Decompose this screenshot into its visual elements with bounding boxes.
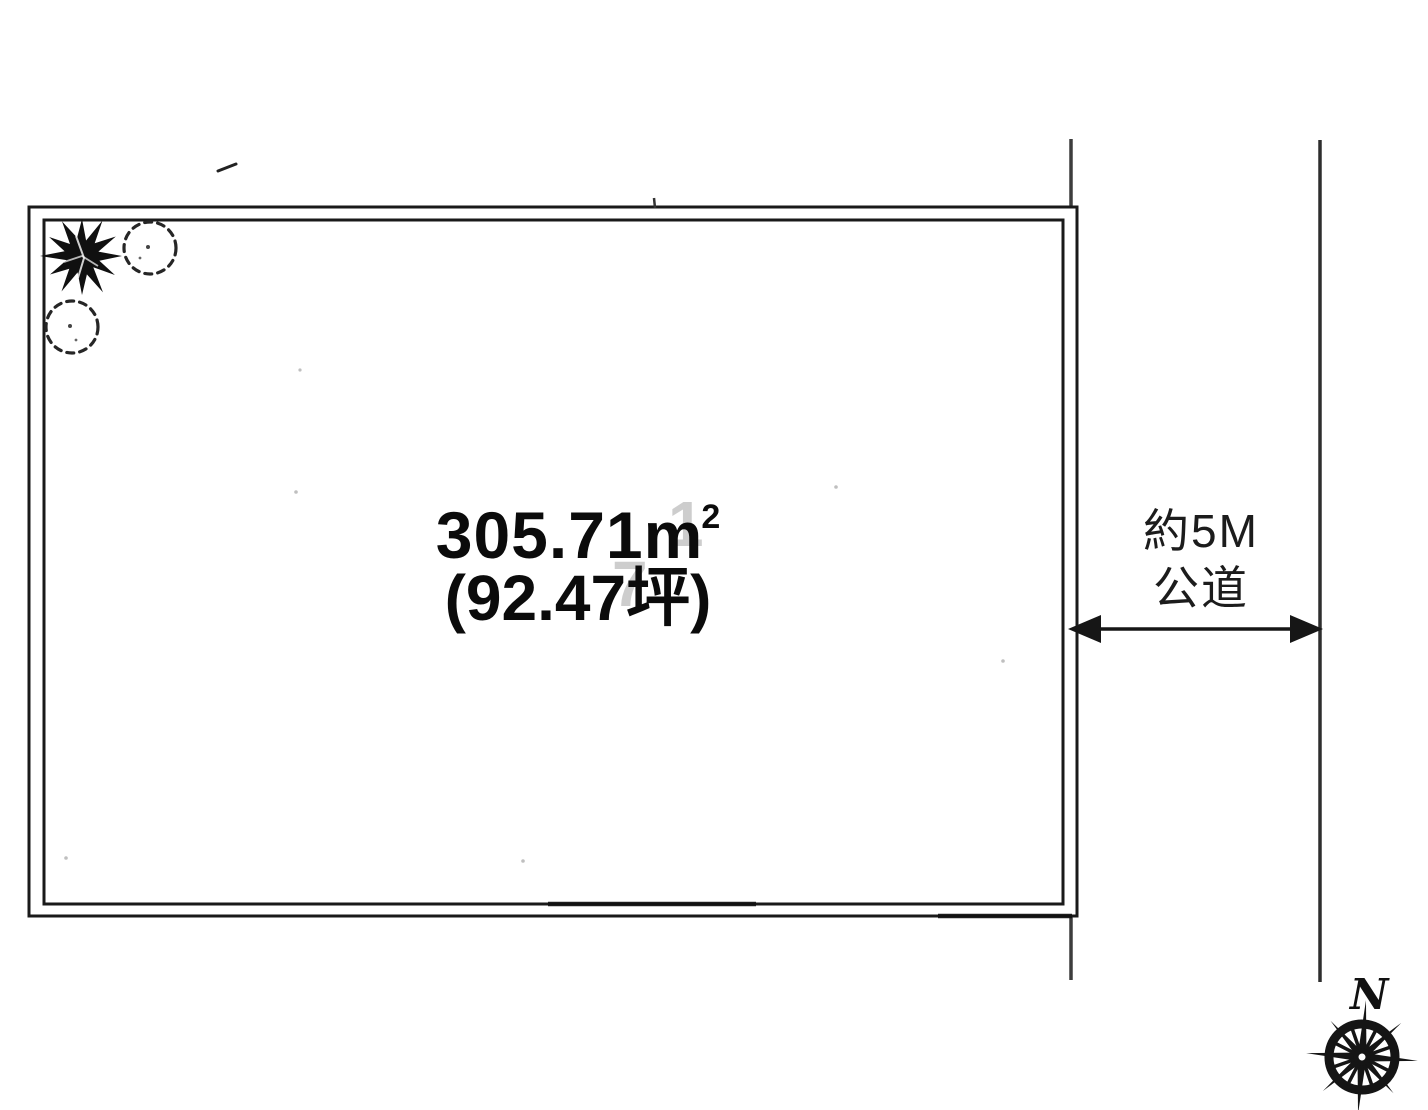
area-sqm-unit: m xyxy=(644,498,704,572)
area-sqm-unit-exponent: 2 xyxy=(701,498,720,536)
road-width-label: 約5M xyxy=(1082,503,1320,560)
road-label: 約5M 公道 xyxy=(1082,503,1320,617)
parcel-area-tsubo: (92.47坪) xyxy=(278,567,878,630)
road-type-label: 公道 xyxy=(1082,560,1320,617)
compass-north-label: N xyxy=(1350,974,1388,1016)
parcel-area-label: 305.71m2 (92.47坪) xyxy=(278,486,878,630)
parcel-area-sqm: 305.71m2 xyxy=(278,486,878,567)
site-plan-canvas: 1 7 305.71m2 (92.47坪) 約5M 公道 N xyxy=(0,0,1428,1110)
label-layer: 305.71m2 (92.47坪) 約5M 公道 N xyxy=(0,0,1428,1110)
area-sqm-value: 305.71 xyxy=(436,498,644,572)
